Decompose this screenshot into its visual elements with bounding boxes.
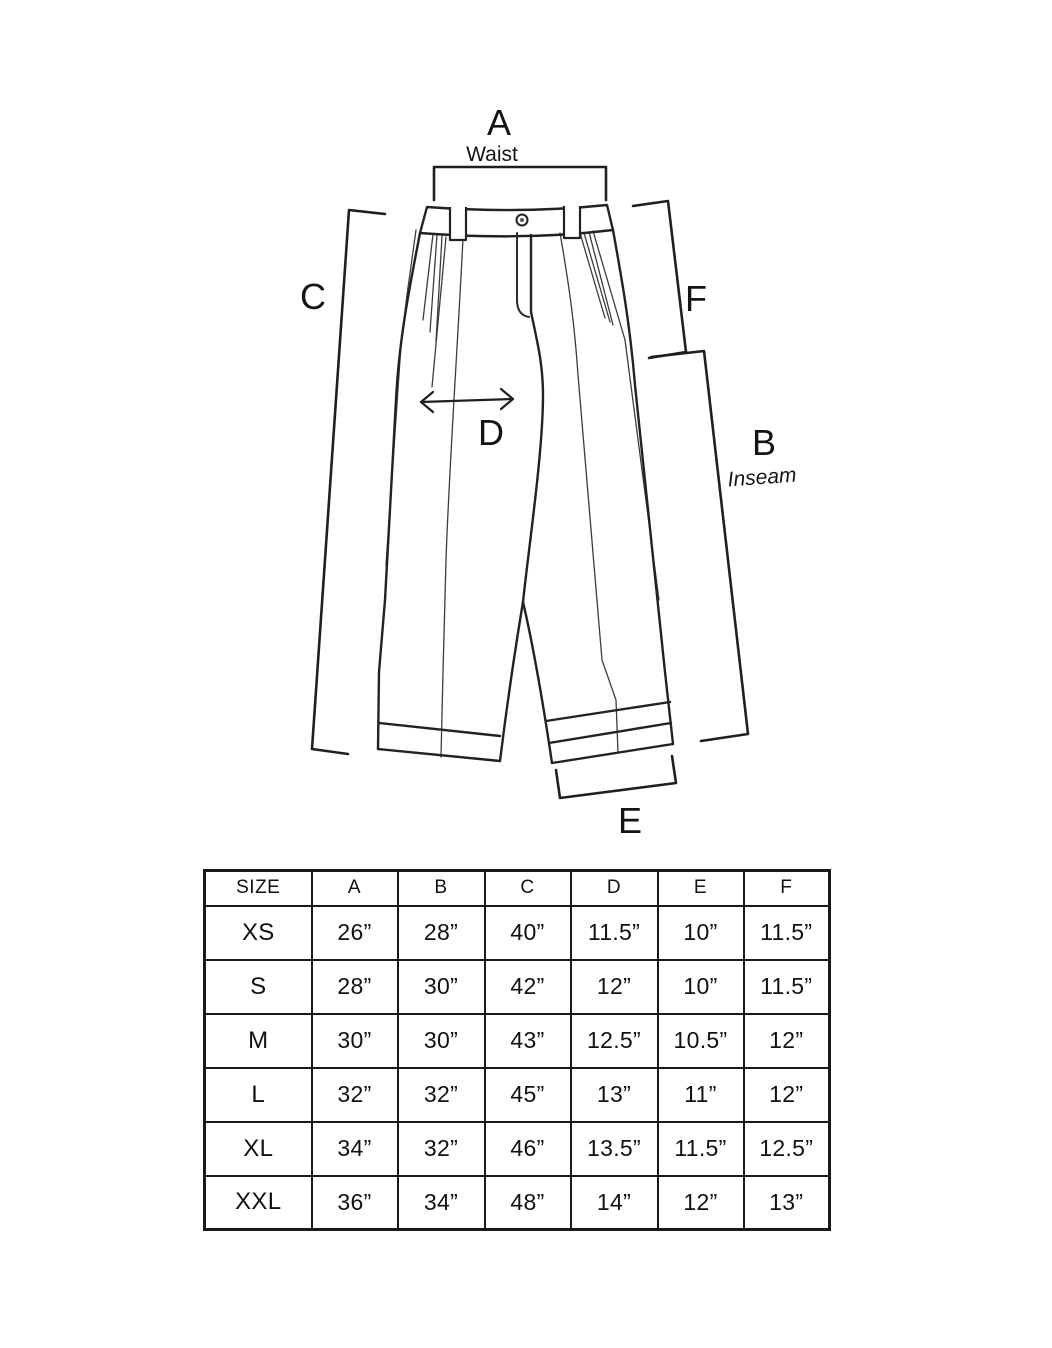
measurement-cell: 28” [398,906,485,960]
measurement-cell: 43” [485,1014,571,1068]
label-d: D [478,412,504,453]
belt-loop-right [564,206,580,238]
label-a-sub: Waist [466,143,518,166]
measurement-cell: 12” [744,1068,830,1122]
right-cuff-seam-line [549,723,671,743]
measurement-cell: 12” [571,960,658,1014]
label-c: C [300,276,326,317]
size-row-l: L 32” 32” 45” 13” 11” 12” [205,1068,830,1122]
col-header-size: SIZE [205,871,312,906]
measurement-cell: 14” [571,1176,658,1230]
size-guide-page: { "diagram": { "labels": { "a": "A", "a_… [0,0,1052,1348]
belt-loop-left [450,207,466,240]
measurement-cell: 10” [658,960,744,1014]
measurement-cell: 42” [485,960,571,1014]
measurement-cell: 12.5” [744,1122,830,1176]
measurement-cell: 30” [398,960,485,1014]
left-cuff-line [379,723,500,736]
measurement-cell: 12” [658,1176,744,1230]
measurement-cell: 36” [312,1176,398,1230]
size-name: M [205,1014,312,1068]
bracket-f-rise [633,201,686,358]
size-row-s: S 28” 30” 42” 12” 10” 11.5” [205,960,830,1014]
measurement-cell: 12.5” [571,1014,658,1068]
label-a: A [487,102,511,143]
size-name: XS [205,906,312,960]
size-name: L [205,1068,312,1122]
measurement-cell: 34” [312,1122,398,1176]
size-name: XL [205,1122,312,1176]
measurement-cell: 28” [312,960,398,1014]
col-header-d: D [571,871,658,906]
bracket-a-waist [434,167,606,200]
measurement-cell: 48” [485,1176,571,1230]
measurement-cell: 30” [398,1014,485,1068]
measurement-cell: 11.5” [744,906,830,960]
col-header-a: A [312,871,398,906]
measurement-cell: 34” [398,1176,485,1230]
col-header-b: B [398,871,485,906]
size-row-xxl: XXL 36” 34” 48” 14” 12” 13” [205,1176,830,1230]
measurement-cell: 13” [744,1176,830,1230]
right-cuff-top-line [546,702,670,721]
measurement-cell: 40” [485,906,571,960]
measurement-cell: 12” [744,1014,830,1068]
measurement-cell: 11.5” [744,960,830,1014]
measurement-cell: 10.5” [658,1014,744,1068]
measurement-cell: 32” [312,1068,398,1122]
label-f: F [685,278,707,319]
measurement-cell: 30” [312,1014,398,1068]
measurement-cell: 11” [658,1068,744,1122]
size-name: XXL [205,1176,312,1230]
measurement-cell: 32” [398,1068,485,1122]
measurement-cell: 11.5” [571,906,658,960]
size-row-m: M 30” 30” 43” 12.5” 10.5” 12” [205,1014,830,1068]
measurement-cell: 32” [398,1122,485,1176]
measurement-cell: 46” [485,1122,571,1176]
col-header-c: C [485,871,571,906]
bracket-e-hem [556,756,676,798]
measurement-cell: 26” [312,906,398,960]
label-e: E [618,800,642,841]
size-chart-table: SIZE A B C D E F XS 26” 28” 40” 11.5” 10… [203,869,831,1231]
col-header-e: E [658,871,744,906]
measurement-cell: 45” [485,1068,571,1122]
pants-technical-drawing: A Waist C F D B Inseam E [0,0,1052,860]
fly-stitch [517,233,529,317]
size-row-xl: XL 34” 32” 46” 13.5” 11.5” 12.5” [205,1122,830,1176]
pleat-and-crease-lines [386,230,659,757]
size-row-xs: XS 26” 28” 40” 11.5” 10” 11.5” [205,906,830,960]
label-b: B [752,422,776,463]
measurement-cell: 13.5” [571,1122,658,1176]
size-chart-section: SIZE A B C D E F XS 26” 28” 40” 11.5” 10… [203,869,831,1231]
pants-outline [378,205,673,763]
waist-button [517,215,528,226]
measurement-cell: 10” [658,906,744,960]
header-row: SIZE A B C D E F [205,871,830,906]
col-header-f: F [744,871,830,906]
d-width-arrow [421,389,513,412]
measurement-cell: 11.5” [658,1122,744,1176]
size-name: S [205,960,312,1014]
measurement-cell: 13” [571,1068,658,1122]
label-b-sub: Inseam [727,464,797,492]
